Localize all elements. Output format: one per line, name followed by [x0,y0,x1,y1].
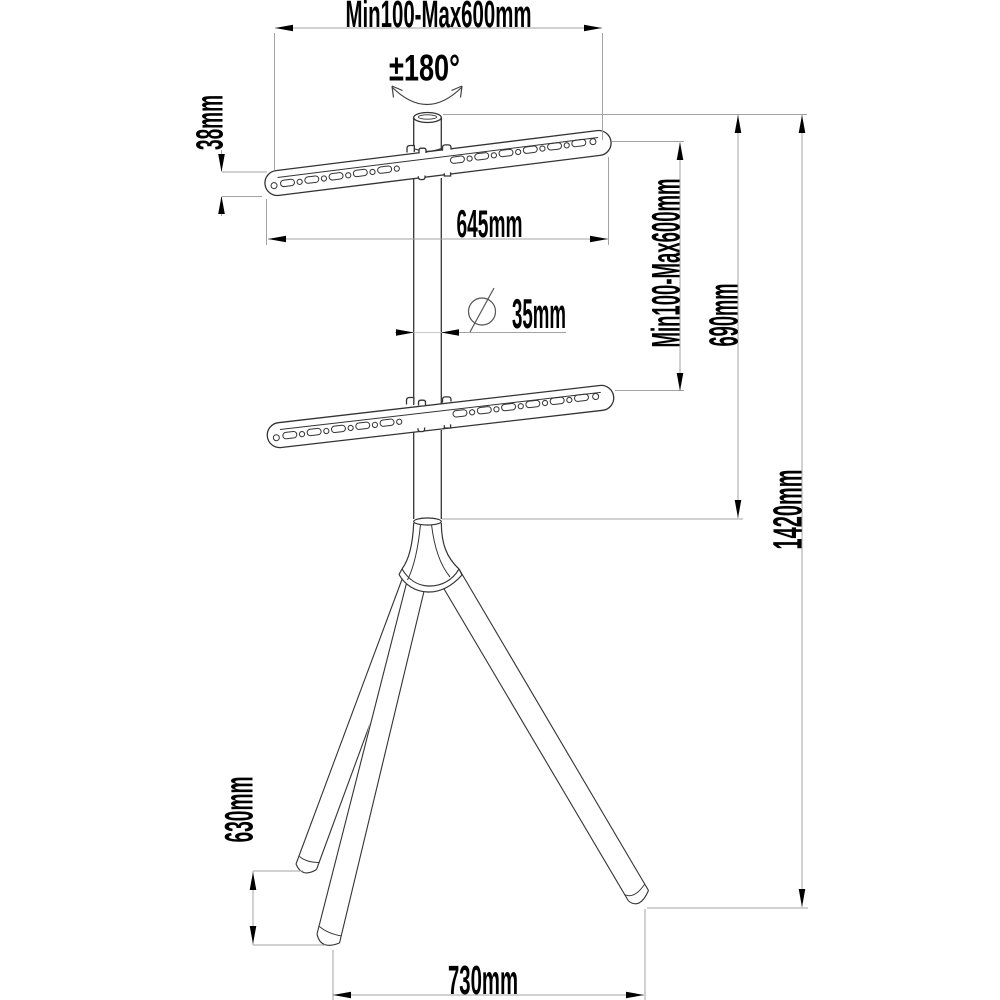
svg-text:35mm: 35mm [512,290,566,337]
svg-text:±180°: ±180° [389,48,460,89]
svg-text:690mm: 690mm [701,284,747,347]
svg-text:1420mm: 1420mm [765,470,811,550]
svg-text:Min100-Max600mm: Min100-Max600mm [346,0,532,36]
svg-text:38mm: 38mm [190,95,232,150]
svg-text:630mm: 630mm [218,777,262,843]
svg-text:Min100-Max600mm: Min100-Max600mm [645,179,689,348]
svg-text:730mm: 730mm [448,957,518,1000]
svg-text:645mm: 645mm [457,203,523,246]
